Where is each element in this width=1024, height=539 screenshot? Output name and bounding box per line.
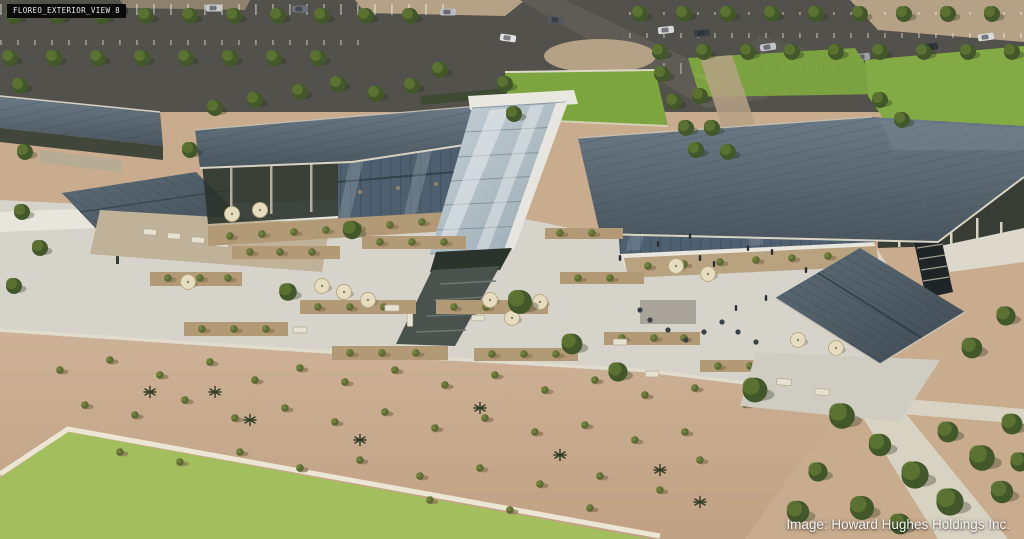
- image-credit: Image: Howard Hughes Holdings Inc.: [786, 517, 1010, 532]
- view-tag-label: FLOREO_EXTERIOR_VIEW 8: [7, 4, 126, 18]
- rendering-scene: [0, 0, 1024, 539]
- rendering-image: FLOREO_EXTERIOR_VIEW 8 Image: Howard Hug…: [0, 0, 1024, 539]
